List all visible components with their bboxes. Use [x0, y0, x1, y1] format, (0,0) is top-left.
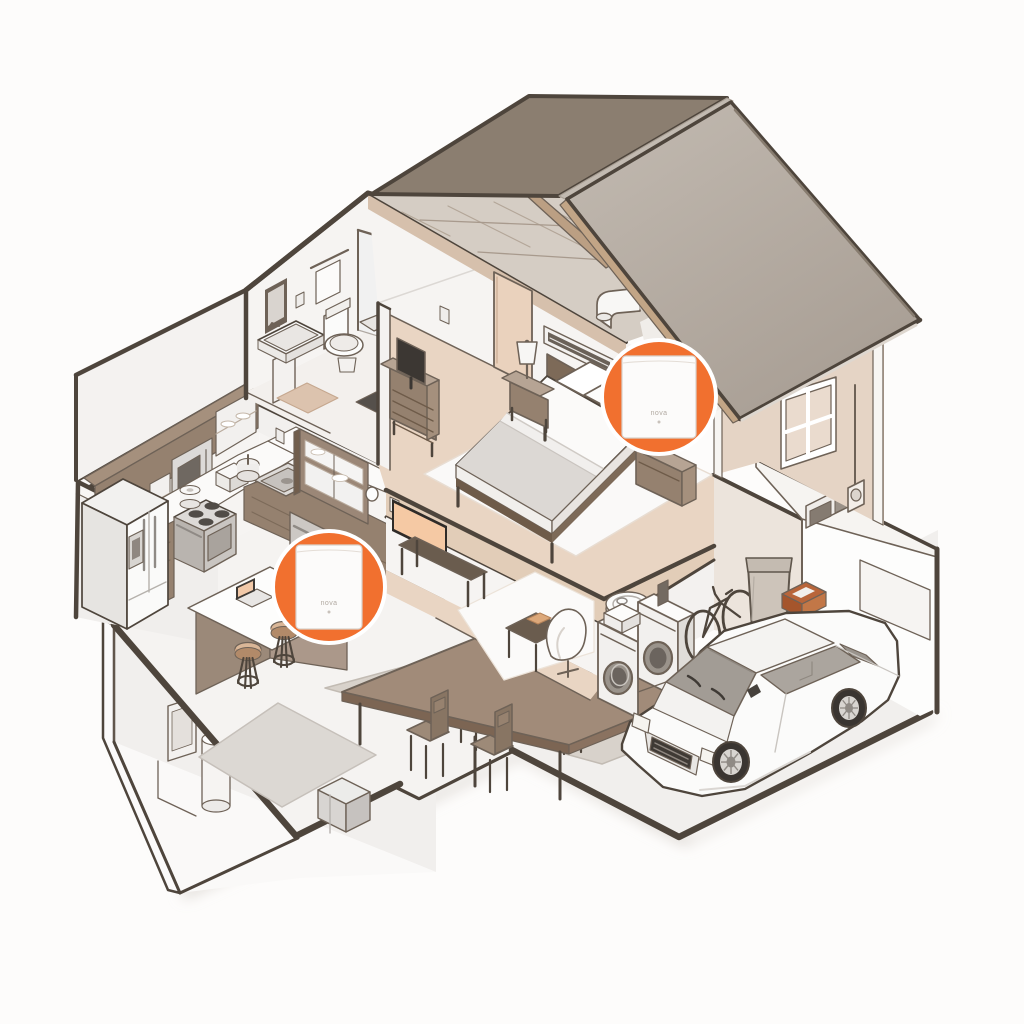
svg-text:nova: nova — [651, 410, 668, 417]
svg-text:nova: nova — [321, 600, 338, 607]
